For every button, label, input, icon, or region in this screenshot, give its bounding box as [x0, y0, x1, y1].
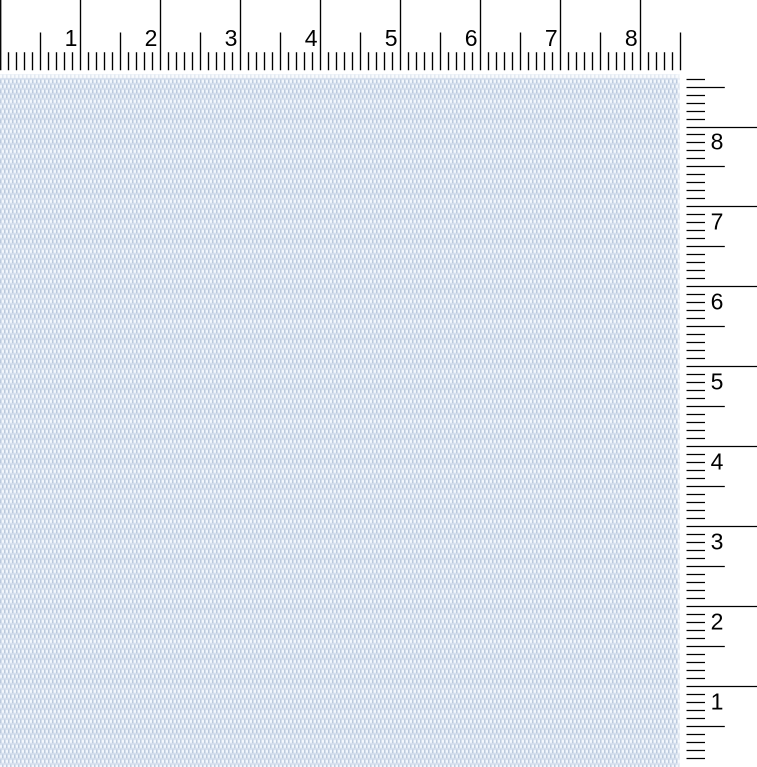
- svg-text:4: 4: [711, 448, 724, 474]
- svg-text:2: 2: [145, 25, 158, 51]
- svg-text:7: 7: [545, 25, 558, 51]
- svg-text:2: 2: [711, 608, 724, 634]
- svg-text:3: 3: [225, 25, 238, 51]
- svg-text:5: 5: [711, 369, 724, 395]
- svg-text:8: 8: [625, 25, 638, 51]
- svg-text:6: 6: [465, 25, 478, 51]
- svg-text:7: 7: [711, 209, 724, 235]
- svg-text:6: 6: [711, 289, 724, 315]
- svg-text:4: 4: [305, 25, 318, 51]
- svg-text:5: 5: [385, 25, 398, 51]
- svg-text:8: 8: [711, 129, 724, 155]
- svg-text:1: 1: [65, 25, 78, 51]
- svg-text:3: 3: [711, 528, 724, 554]
- svg-text:1: 1: [711, 688, 724, 714]
